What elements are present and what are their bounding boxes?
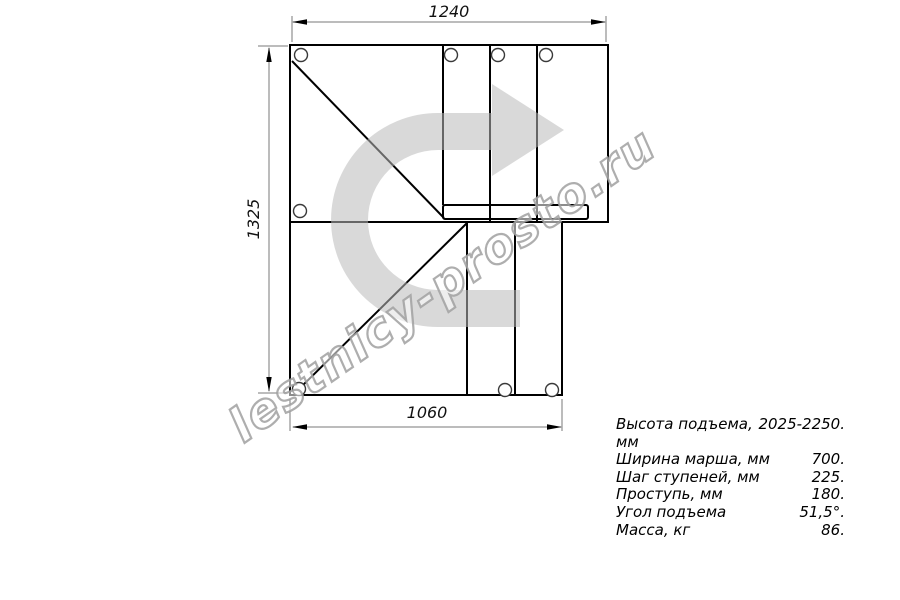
spec-label: Шаг ступеней, мм — [616, 469, 760, 487]
mount-hole — [546, 384, 559, 397]
spec-row: Шаг ступеней, мм 225. — [616, 469, 845, 487]
spec-value: 51,5°. — [799, 504, 845, 522]
spec-value: 86. — [821, 522, 845, 540]
spec-row: Ширина марша, мм 700. — [616, 451, 845, 469]
arrowhead-right — [591, 19, 606, 24]
spec-table: Высота подъема, мм 2025-2250. Ширина мар… — [616, 416, 845, 539]
staircase-plan-page: 1240 1325 1060 lestnicy-prosto.ru Высота… — [0, 0, 900, 600]
spec-label: Масса, кг — [616, 522, 690, 540]
spec-row: Высота подъема, мм 2025-2250. — [616, 416, 845, 451]
arrowhead-down — [266, 377, 271, 392]
arrowhead-right — [547, 424, 562, 429]
landing-step-strip — [443, 205, 588, 219]
spec-label: Угол подъема — [616, 504, 726, 522]
dim-label-top: 1240 — [429, 2, 470, 21]
mount-hole — [492, 49, 505, 62]
mount-hole — [295, 49, 308, 62]
mount-hole — [499, 384, 512, 397]
spec-value: 180. — [812, 486, 845, 504]
dim-label-bottom: 1060 — [407, 403, 448, 422]
arrowhead-left — [292, 19, 307, 24]
mount-hole — [293, 383, 306, 396]
dimension-arrowheads — [266, 19, 606, 429]
spec-row: Угол подъема 51,5°. — [616, 504, 845, 522]
spec-value: 700. — [812, 451, 845, 469]
spec-label: Ширина марша, мм — [616, 451, 770, 469]
mount-hole — [540, 49, 553, 62]
spec-row: Масса, кг 86. — [616, 522, 845, 540]
spec-value: 225. — [812, 469, 845, 487]
arrowhead-up — [266, 47, 271, 62]
mount-hole — [445, 49, 458, 62]
spec-label: Проступь, мм — [616, 486, 723, 504]
mount-hole — [294, 205, 307, 218]
arrowhead-left — [292, 424, 307, 429]
dim-label-left: 1325 — [244, 199, 263, 240]
spec-value: 2025-2250. — [758, 416, 845, 434]
dimension-lines — [258, 16, 606, 431]
spec-row: Проступь, мм 180. — [616, 486, 845, 504]
spec-label: Высота подъема, мм — [616, 416, 758, 451]
